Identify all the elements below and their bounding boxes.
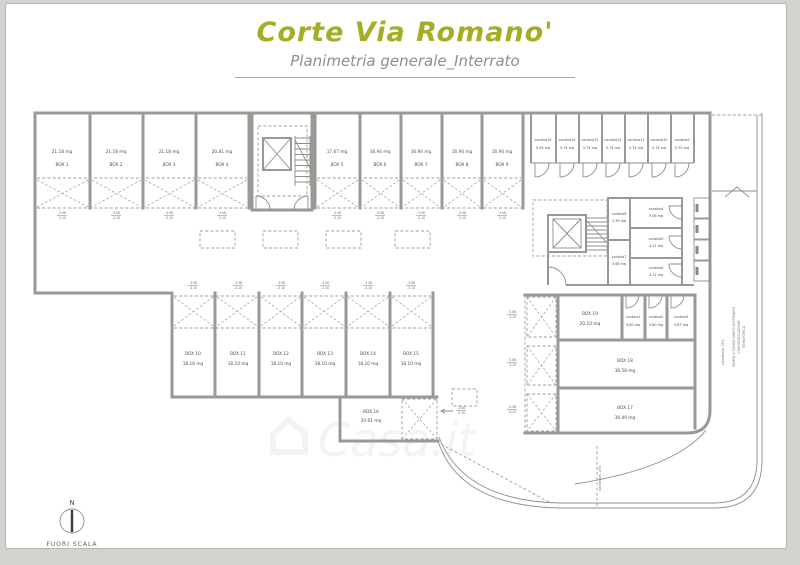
svg-text:-3.10: -3.10 — [333, 216, 341, 220]
box11-name: BOX 11 — [230, 351, 246, 357]
ramp-label: RAMPA A SENSO UNICO ALTERNATO CON REGOLA… — [732, 306, 746, 367]
level-marker: -3.08-3.10 — [111, 211, 121, 220]
level-marker: -3.08-3.10 — [507, 310, 517, 319]
cantina4-area: 9.06 mq — [649, 214, 663, 218]
box14-area: 18.10 mq — [358, 361, 379, 367]
aisle-pillars — [200, 231, 430, 248]
box7-area: 16.94 mq — [411, 149, 432, 155]
svg-text:-3.10: -3.10 — [165, 216, 173, 220]
cantina7-name: cantina7 — [612, 255, 627, 259]
box5-name: BOX 5 — [330, 162, 343, 168]
svg-text:-3.08: -3.08 — [234, 281, 242, 285]
svg-text:-3.10: -3.10 — [321, 286, 329, 290]
box3-name: BOX 3 — [162, 162, 175, 168]
level-marker: -3.08-3.10 — [363, 281, 373, 290]
cantina8-name: cantina8 — [612, 212, 627, 216]
level-marker: -3.08-3.10 — [375, 211, 385, 220]
ramp-slope-label-bottom: pendenza 15% — [598, 465, 602, 491]
box5-area: 17.67 mq — [327, 149, 348, 155]
cantina9-area: 5.70 mq — [675, 146, 689, 150]
box9-area: 16.94 mq — [492, 149, 513, 155]
cantina15-area: 9.26 mq — [536, 146, 550, 150]
level-markers: -3.08-3.10 -3.08-3.10 -3.08-3.10 -3.08-3… — [57, 211, 517, 415]
ramp-label-line1: RAMPA A SENSO UNICO ALTERNATO — [732, 306, 736, 367]
box12-area: 18.10 mq — [271, 361, 292, 367]
cantina13-area: 5.74 mq — [583, 146, 597, 150]
svg-text:pendenza 15%: pendenza 15% — [721, 339, 725, 365]
box3-area: 21.18 mq — [159, 149, 180, 155]
cantina9-name: cantina9 — [675, 138, 690, 142]
level-marker: -3.08-3.10 — [456, 406, 466, 415]
svg-text:-3.10: -3.10 — [189, 286, 197, 290]
svg-text:-3.10: -3.10 — [458, 216, 466, 220]
box14-name: BOX 14 — [360, 351, 376, 357]
svg-text:-3.10: -3.10 — [112, 216, 120, 220]
svg-text:-3.10: -3.10 — [234, 286, 242, 290]
cantina10-name: cantina10 — [651, 138, 668, 142]
cantina3-name: cantina3 — [674, 315, 689, 319]
svg-text:-3.08: -3.08 — [189, 281, 197, 285]
cantina12-name: cantina12 — [605, 138, 622, 142]
svg-text:-3.08: -3.08 — [498, 211, 506, 215]
cantina14-area: 5.74 mq — [560, 146, 574, 150]
cantina6-area: 4.11 mq — [649, 273, 663, 277]
box6-name: BOX 6 — [373, 162, 386, 168]
compass: N FUORI SCALA — [46, 499, 97, 548]
svg-text:-3.10: -3.10 — [364, 286, 372, 290]
box12-name: BOX 12 — [273, 351, 289, 357]
level-marker: -3.08-3.10 — [497, 211, 507, 220]
svg-text:-3.08: -3.08 — [58, 211, 66, 215]
level-marker: -3.08-3.10 — [233, 281, 243, 290]
box7-name: BOX 7 — [414, 162, 427, 168]
cantina8-area: 3.39 mq — [612, 219, 626, 223]
svg-text:-3.10: -3.10 — [218, 216, 226, 220]
svg-text:-3.08: -3.08 — [333, 211, 341, 215]
box2-area: 21.18 mq — [106, 149, 127, 155]
svg-text:-3.08: -3.08 — [277, 281, 285, 285]
cantina15-name: cantina15 — [535, 138, 552, 142]
cantina5-area: 4.11 mq — [649, 244, 663, 248]
cantina4-name: cantina4 — [649, 207, 664, 211]
box8-name: BOX 8 — [455, 162, 468, 168]
level-marker: -3.08-3.10 — [164, 211, 174, 220]
svg-text:-3.08: -3.08 — [364, 281, 372, 285]
svg-text:-3.08: -3.08 — [376, 211, 384, 215]
cantina11-name: cantina11 — [628, 138, 645, 142]
box1-area: 21.18 mq — [52, 149, 73, 155]
box10-area: 18.16 mq — [183, 361, 204, 367]
box19-area: 20.10 mq — [580, 321, 601, 327]
box18-name: BOX 18 — [617, 358, 633, 364]
box11-area: 18.10 mq — [228, 361, 249, 367]
svg-text:-3.10: -3.10 — [58, 216, 66, 220]
cantina2-area: 4.80 mq — [649, 323, 663, 327]
svg-text:-3.08: -3.08 — [417, 211, 425, 215]
compass-north-label: N — [69, 499, 74, 507]
box13-name: BOX 13 — [317, 351, 333, 357]
level-marker: -3.08-3.10 — [406, 281, 416, 290]
ramp: RAMPA A SENSO UNICO ALTERNATO CON REGOLA… — [438, 113, 762, 508]
level-marker: -3.08-3.10 — [332, 211, 342, 220]
level-marker: -3.08-3.10 — [276, 281, 286, 290]
box9-name: BOX 9 — [495, 162, 508, 168]
box15-area: 18.10 mq — [401, 361, 422, 367]
svg-text:-3.08: -3.08 — [508, 310, 516, 314]
cantina10-area: 5.74 mq — [652, 146, 666, 150]
level-marker: -3.08-3.10 — [188, 281, 198, 290]
svg-text:-3.10: -3.10 — [277, 286, 285, 290]
svg-text:pendenza 15%: pendenza 15% — [598, 465, 602, 491]
svg-text:-3.10: -3.10 — [508, 315, 516, 319]
cantina11-area: 5.74 mq — [629, 146, 643, 150]
stair-core-left — [252, 113, 312, 210]
level-marker: -3.08-3.10 — [57, 211, 67, 220]
box4-area: 20.81 mq — [212, 149, 233, 155]
cantina2-name: cantina2 — [649, 315, 664, 319]
box18-area: 36.58 mq — [615, 368, 636, 374]
box6-area: 16.94 mq — [370, 149, 391, 155]
cantina1-area: 4.80 mq — [626, 323, 640, 327]
page: { "header": { "title": "Corte Via Romano… — [0, 0, 800, 565]
box16-area: 20.61 mq — [361, 418, 382, 424]
box13-area: 18.10 mq — [315, 361, 336, 367]
level-marker: -3.08-3.10 — [507, 358, 517, 367]
box4-name: BOX 4 — [215, 162, 228, 168]
box17-area: 36.49 mq — [615, 415, 636, 421]
svg-text:-3.10: -3.10 — [508, 410, 516, 414]
svg-text:-3.10: -3.10 — [407, 286, 415, 290]
level-marker: -3.08-3.10 — [416, 211, 426, 220]
box8-area: 16.94 mq — [452, 149, 473, 155]
svg-text:-3.10: -3.10 — [376, 216, 384, 220]
box2-name: BOX 2 — [109, 162, 122, 168]
box17-name: BOX 17 — [617, 405, 633, 411]
box1-name: BOX 1 — [55, 162, 68, 168]
cantina1-name: cantina1 — [626, 315, 641, 319]
box16-name: BOX 16 — [363, 409, 379, 415]
svg-text:-3.10: -3.10 — [508, 363, 516, 367]
cantina3-area: 4.87 mq — [674, 323, 688, 327]
watermark-house-icon — [273, 420, 305, 452]
level-marker: -3.08-3.10 — [507, 405, 517, 414]
svg-text:-3.10: -3.10 — [417, 216, 425, 220]
svg-text:-3.08: -3.08 — [218, 211, 226, 215]
cantina5-name: cantina5 — [649, 237, 664, 241]
top-box-row-walls — [37, 113, 523, 208]
box10-name: BOX 10 — [185, 351, 201, 357]
svg-text:-3.08: -3.08 — [458, 211, 466, 215]
floor-plan: Casa.it — [0, 0, 800, 565]
ramp-slope-label-right: pendenza 15% — [721, 339, 725, 365]
svg-text:-3.08: -3.08 — [508, 358, 516, 362]
svg-text:-3.08: -3.08 — [165, 211, 173, 215]
right-box-block-walls — [525, 295, 695, 433]
svg-text:-3.08: -3.08 — [407, 281, 415, 285]
cantina-row-top-walls — [531, 113, 694, 177]
box19-name: BOX 19 — [582, 311, 598, 317]
svg-text:-3.08: -3.08 — [112, 211, 120, 215]
ramp-direction-arrow — [725, 187, 749, 197]
svg-text:-3.08: -3.08 — [321, 281, 329, 285]
ramp-label-line3: SEMAFORICA — [742, 325, 746, 348]
svg-text:-3.10: -3.10 — [457, 411, 465, 415]
box15-name: BOX 15 — [403, 351, 419, 357]
level-marker: -3.08-3.10 — [320, 281, 330, 290]
cantina14-name: cantina14 — [559, 138, 576, 142]
level-marker: -3.08-3.10 — [217, 211, 227, 220]
svg-text:-3.10: -3.10 — [498, 216, 506, 220]
svg-text:-3.08: -3.08 — [457, 406, 465, 410]
svg-text:-3.08: -3.08 — [508, 405, 516, 409]
cantina6-name: cantina6 — [649, 266, 664, 270]
cantina13-name: cantina13 — [582, 138, 599, 142]
cantina12-area: 5.74 mq — [606, 146, 620, 150]
ramp-label-line2: CON REGOLAZIONE — [737, 320, 741, 353]
compass-caption: FUORI SCALA — [46, 541, 97, 548]
cantina7-area: 3.68 mq — [612, 262, 626, 266]
box-labels: 21.18 mq BOX 1 21.18 mq BOX 2 21.18 mq B… — [52, 149, 636, 424]
level-marker: -3.08-3.10 — [457, 211, 467, 220]
